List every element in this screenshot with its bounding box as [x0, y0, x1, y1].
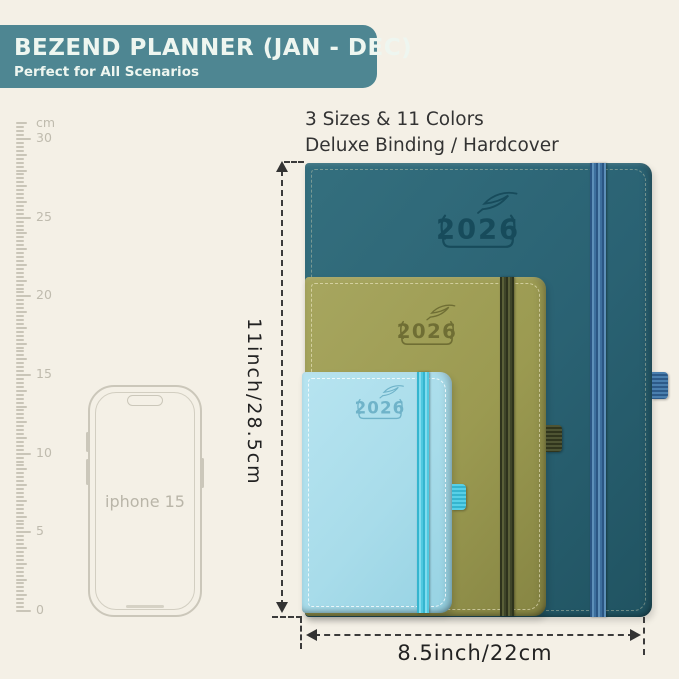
ruler-tick: [16, 193, 24, 195]
ruler-tick: [16, 398, 24, 400]
ruler-tick: [16, 303, 24, 305]
ruler-tick: [16, 256, 24, 258]
ruler-tick: [16, 563, 27, 565]
ruler-tick: [16, 417, 24, 419]
ruler-tick: [16, 331, 24, 333]
ruler-tick: [16, 185, 27, 187]
ruler-unit-label: cm: [36, 115, 55, 130]
ruler-tick: [16, 339, 24, 341]
ruler-tick: [16, 539, 24, 541]
page-subtitle: Perfect for All Scenarios: [14, 64, 363, 80]
ruler-tick: [16, 366, 24, 368]
iphone-volume-button: [86, 459, 89, 485]
arrow-up-icon: [276, 161, 288, 172]
elastic-band: [500, 277, 514, 616]
ruler-tick: [16, 268, 24, 270]
ruler-tick: [16, 154, 27, 156]
ruler-tick: [16, 461, 24, 463]
ruler-tick: [16, 457, 24, 459]
year-text: 2026: [355, 398, 406, 417]
width-dimension-label: 8.5inch/22cm: [345, 641, 605, 665]
ruler-tick: [16, 225, 24, 227]
ruler-tick-label: 30: [36, 130, 52, 145]
ruler-tick: [16, 582, 24, 584]
ruler-tick: [16, 409, 24, 411]
ruler-tick: [16, 197, 24, 199]
ruler-tick: [16, 512, 24, 514]
ruler-tick: [16, 500, 27, 502]
ruler-tick: [16, 547, 27, 549]
ruler-tick: [16, 579, 27, 581]
feather-icon: [478, 193, 517, 213]
ruler-tick: [16, 378, 24, 380]
ruler-tick: [16, 516, 27, 518]
ruler-tick: [16, 213, 24, 215]
ruler: cm 302520151050: [16, 0, 66, 679]
ruler-tick: [16, 484, 27, 486]
year-text: 2026: [397, 320, 457, 343]
year-badge: 2026: [352, 384, 408, 424]
iphone-label: iphone 15: [90, 492, 200, 511]
arrow-right-icon: [630, 629, 641, 641]
ruler-tick: [16, 575, 24, 577]
ruler-tick: [16, 551, 24, 553]
ruler-tick: [16, 386, 24, 388]
ruler-tick: [16, 413, 24, 415]
ruler-tick: [16, 252, 24, 254]
ruler-tick: [16, 362, 24, 364]
ruler-tick: [16, 323, 24, 325]
ruler-tick: [16, 421, 27, 423]
ruler-tick: [16, 488, 24, 490]
ruler-tick: [16, 504, 24, 506]
ruler-tick: [16, 236, 24, 238]
ruler-tick: [16, 429, 24, 431]
ruler-tick: [16, 162, 24, 164]
ruler-tick: [16, 441, 24, 443]
year-text: 2026: [436, 214, 520, 246]
ruler-tick: [16, 358, 27, 360]
ruler-tick: [16, 464, 24, 466]
iphone-power-button: [201, 458, 204, 488]
ruler-tick: [16, 382, 24, 384]
ruler-tick: [16, 480, 24, 482]
ruler-tick: [16, 284, 24, 286]
ruler-tick: [16, 166, 24, 168]
iphone-home-indicator: [126, 605, 164, 608]
ruler-tick: [16, 217, 31, 219]
ruler-tick: [16, 606, 24, 608]
ruler-tick: [16, 559, 24, 561]
year-badge: 2026: [394, 303, 460, 351]
ruler-tick: [16, 433, 24, 435]
ruler-tick-label: 25: [36, 209, 52, 224]
ruler-tick: [16, 280, 27, 282]
ruler-tick: [16, 445, 24, 447]
ruler-tick: [16, 449, 24, 451]
planner-small-blue: 2026: [302, 372, 452, 613]
height-dimension-line: [281, 170, 283, 606]
width-dimension-line: [314, 634, 634, 636]
ruler-tick: [16, 590, 24, 592]
ruler-tick-label: 10: [36, 445, 52, 460]
ruler-tick: [16, 327, 27, 329]
ruler-tick: [16, 189, 24, 191]
ruler-tick: [16, 138, 31, 140]
ruler-tick: [16, 370, 24, 372]
product-infographic: BEZEND PLANNER (JAN - DEC) Perfect for A…: [0, 0, 679, 679]
ruler-tick: [16, 173, 24, 175]
ruler-tick: [16, 288, 24, 290]
ruler-tick: [16, 610, 31, 612]
ruler-tick: [16, 126, 24, 128]
ruler-tick: [16, 402, 24, 404]
ruler-tick: [16, 555, 24, 557]
ruler-tick: [16, 307, 24, 309]
ruler-tick: [16, 311, 27, 313]
ruler-tick: [16, 598, 24, 600]
ruler-tick: [16, 508, 24, 510]
ruler-tick: [16, 150, 24, 152]
arrow-left-icon: [306, 629, 317, 641]
ruler-tick: [16, 374, 31, 376]
ruler-tick: [16, 315, 24, 317]
elastic-band: [417, 372, 429, 613]
feather-icon: [380, 386, 403, 398]
ruler-tick: [16, 468, 27, 470]
ruler-tick: [16, 181, 24, 183]
ruler-tick: [16, 291, 24, 293]
ruler-tick: [16, 571, 24, 573]
ruler-tick: [16, 390, 27, 392]
ruler-tick: [16, 492, 24, 494]
ruler-tick: [16, 240, 24, 242]
ruler-tick: [16, 244, 24, 246]
ruler-tick-label: 20: [36, 287, 52, 302]
ruler-tick: [16, 122, 27, 124]
ruler-tick: [16, 229, 24, 231]
ruler-tick-label: 15: [36, 366, 52, 381]
ruler-tick: [16, 272, 24, 274]
ruler-tick: [16, 248, 27, 250]
ruler-tick: [16, 453, 31, 455]
ruler-tick: [16, 177, 24, 179]
page-title: BEZEND PLANNER (JAN - DEC): [14, 35, 363, 61]
ruler-tick: [16, 520, 24, 522]
ruler-tick: [16, 476, 24, 478]
height-dimension-label: 11inch/28.5cm: [243, 318, 265, 486]
iphone-dynamic-island: [127, 395, 163, 406]
ruler-tick: [16, 406, 27, 408]
ruler-tick: [16, 134, 24, 136]
ruler-tick: [16, 158, 24, 160]
ruler-tick: [16, 586, 24, 588]
ruler-tick: [16, 350, 24, 352]
pen-loop: [452, 484, 466, 510]
ruler-tick: [16, 343, 27, 345]
arrow-down-icon: [276, 602, 288, 613]
ruler-tick: [16, 201, 27, 203]
year-badge: 2026: [432, 190, 524, 256]
iphone-volume-button: [86, 432, 89, 452]
ruler-tick: [16, 394, 24, 396]
ruler-tick-label: 0: [36, 602, 44, 617]
ruler-tick: [16, 146, 24, 148]
pen-loop: [546, 425, 562, 452]
ruler-tick: [16, 535, 24, 537]
ruler-tick: [16, 221, 24, 223]
ruler-tick: [16, 437, 27, 439]
iphone-outline: iphone 15: [88, 385, 202, 617]
ruler-tick: [16, 170, 27, 172]
ruler-tick: [16, 567, 24, 569]
ruler-tick-label: 5: [36, 523, 44, 538]
ruler-tick: [16, 232, 27, 234]
feature-line-sizes: 3 Sizes & 11 Colors: [305, 107, 559, 133]
feather-icon: [427, 305, 455, 320]
ruler-tick: [16, 594, 27, 596]
ruler-tick: [16, 260, 24, 262]
pen-loop: [652, 372, 668, 399]
ruler-tick: [16, 602, 24, 604]
ruler-tick: [16, 209, 24, 211]
feature-text: 3 Sizes & 11 Colors Deluxe Binding / Har…: [305, 107, 559, 159]
ruler-tick: [16, 335, 24, 337]
ruler-tick: [16, 531, 31, 533]
ruler-tick: [16, 299, 24, 301]
ruler-tick: [16, 543, 24, 545]
ruler-tick: [16, 472, 24, 474]
ruler-tick: [16, 523, 24, 525]
ruler-tick: [16, 319, 24, 321]
ruler-tick: [16, 496, 24, 498]
ruler-tick: [16, 276, 24, 278]
ruler-tick: [16, 264, 27, 266]
dimension-connector: [272, 616, 302, 618]
ruler-tick: [16, 295, 31, 297]
dimension-extension-line: [643, 617, 645, 655]
dimension-extension-line: [300, 617, 302, 649]
ruler-tick: [16, 354, 24, 356]
ruler-tick: [16, 130, 24, 132]
ruler-tick: [16, 425, 24, 427]
ruler-tick: [16, 142, 24, 144]
feature-line-binding: Deluxe Binding / Hardcover: [305, 133, 559, 159]
ruler-tick: [16, 527, 24, 529]
elastic-band: [590, 163, 606, 617]
ruler-tick: [16, 347, 24, 349]
ruler-tick: [16, 205, 24, 207]
